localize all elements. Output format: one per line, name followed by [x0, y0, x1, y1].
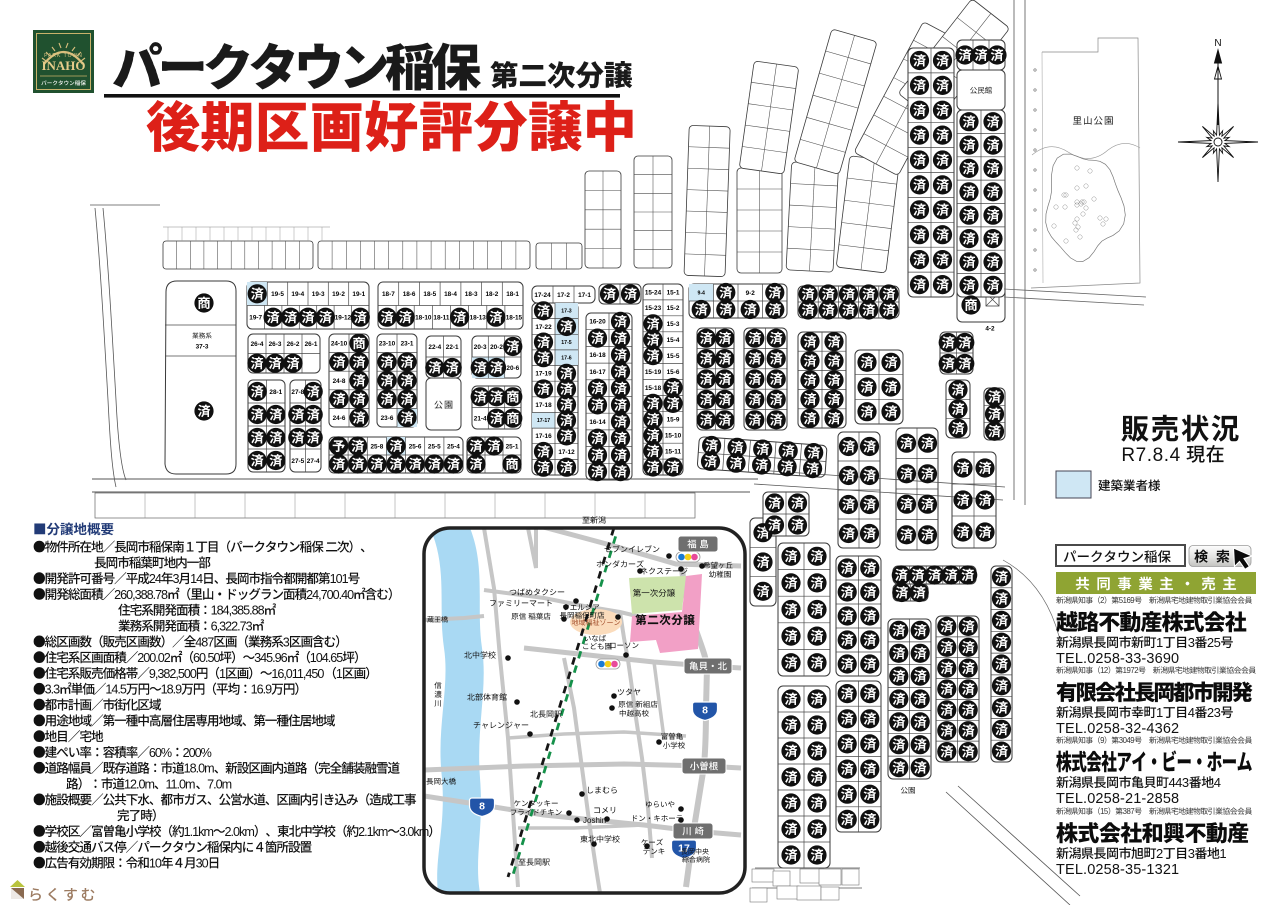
svg-text:18.0m: 18.0m: [184, 761, 214, 776]
svg-text:15-9: 15-9: [667, 417, 680, 424]
svg-text:30: 30: [196, 855, 209, 870]
svg-text:27-5: 27-5: [291, 458, 304, 465]
svg-text:2: 2: [1100, 596, 1104, 605]
svg-text:19-3: 19-3: [312, 291, 325, 298]
svg-text:3: 3: [283, 634, 290, 649]
svg-text:17-18: 17-18: [535, 402, 552, 409]
svg-text:17-12: 17-12: [558, 449, 575, 456]
svg-text:22-4: 22-4: [428, 344, 441, 351]
svg-text:11.0m: 11.0m: [165, 776, 194, 791]
svg-text:2.1km: 2.1km: [358, 824, 388, 839]
svg-text:TEL.0258-33-3690: TEL.0258-33-3690: [1056, 651, 1179, 667]
svg-text:6,322.73: 6,322.73: [211, 618, 253, 633]
svg-text:19-4: 19-4: [291, 291, 304, 298]
svg-text:3.3: 3.3: [45, 682, 60, 697]
svg-text:9,382,500: 9,382,500: [149, 666, 197, 681]
svg-text:17-16: 17-16: [535, 433, 552, 440]
svg-text:19-1: 19-1: [352, 291, 365, 298]
svg-text:8: 8: [702, 705, 708, 717]
svg-text:18-3: 18-3: [465, 291, 478, 298]
svg-text:2.0km: 2.0km: [225, 824, 255, 839]
svg-text:26-3: 26-3: [269, 341, 282, 348]
svg-text:17-5: 17-5: [561, 340, 571, 346]
svg-text:18-4: 18-4: [444, 291, 457, 298]
svg-text:26-2: 26-2: [287, 341, 300, 348]
svg-text:18.9: 18.9: [161, 682, 182, 697]
svg-text:200.02: 200.02: [137, 650, 170, 665]
svg-text:17-1: 17-1: [578, 292, 591, 299]
svg-text:TEL.0258-21-2858: TEL.0258-21-2858: [1056, 791, 1179, 807]
svg-text:23-6: 23-6: [381, 415, 394, 422]
svg-text:12: 12: [1100, 666, 1108, 675]
svg-text:15-6: 15-6: [667, 369, 680, 376]
svg-text:20-2: 20-2: [490, 344, 503, 351]
svg-text:28-1: 28-1: [269, 389, 282, 396]
svg-text:7.0m: 7.0m: [207, 776, 231, 791]
svg-text:17-19: 17-19: [535, 371, 552, 378]
svg-text:23-1: 23-1: [401, 341, 414, 348]
svg-text:19-5: 19-5: [271, 291, 284, 298]
svg-text:18-10: 18-10: [415, 315, 432, 322]
svg-text:60.50: 60.50: [193, 650, 220, 665]
svg-text:21-4: 21-4: [474, 416, 487, 423]
svg-text:4: 4: [1214, 775, 1221, 790]
svg-text:487: 487: [195, 634, 214, 649]
svg-text:3: 3: [1188, 635, 1195, 650]
svg-text:37-3: 37-3: [196, 343, 209, 350]
svg-text:15-11: 15-11: [665, 448, 681, 455]
svg-text:9: 9: [1100, 736, 1104, 745]
svg-text:17-3: 17-3: [561, 309, 571, 315]
svg-text:3: 3: [172, 571, 179, 586]
svg-text:10: 10: [149, 855, 162, 870]
svg-text:17-17: 17-17: [537, 418, 550, 424]
svg-text:443: 443: [1168, 775, 1188, 790]
svg-text:16-14: 16-14: [589, 419, 606, 426]
svg-text:19-7: 19-7: [249, 315, 262, 322]
svg-text:N: N: [1214, 38, 1221, 49]
svg-text:3049: 3049: [1119, 736, 1135, 745]
svg-text:1.1km: 1.1km: [184, 824, 214, 839]
svg-text:R7.8.4: R7.8.4: [1121, 445, 1180, 466]
svg-text:1972: 1972: [1123, 666, 1139, 675]
svg-text:18-5: 18-5: [423, 291, 436, 298]
svg-text:1: 1: [1219, 846, 1226, 861]
svg-text:1: 1: [336, 666, 343, 681]
svg-text:200%: 200%: [183, 745, 212, 760]
svg-text:17-24: 17-24: [534, 292, 551, 299]
svg-text:15: 15: [1100, 807, 1109, 816]
svg-text:15-1: 15-1: [667, 289, 680, 296]
svg-text:16.9: 16.9: [251, 682, 272, 697]
svg-text:25-1: 25-1: [506, 443, 519, 450]
svg-text:Joshin: Joshin: [583, 816, 606, 825]
svg-text:15-2: 15-2: [667, 305, 680, 312]
svg-text:23-10: 23-10: [379, 341, 396, 348]
svg-text:8: 8: [479, 801, 485, 813]
svg-text:16-20: 16-20: [589, 319, 606, 326]
svg-text:15-18: 15-18: [645, 385, 662, 392]
svg-text:25-4: 25-4: [447, 443, 460, 450]
svg-text:1: 1: [1156, 705, 1163, 720]
svg-text:387: 387: [1123, 807, 1135, 816]
svg-text:15-4: 15-4: [667, 337, 680, 344]
svg-text:27-4: 27-4: [307, 458, 320, 465]
svg-text:23: 23: [1207, 705, 1221, 720]
svg-text:2: 2: [1156, 846, 1163, 861]
svg-text:17-22: 17-22: [535, 324, 552, 331]
svg-text:15-3: 15-3: [667, 321, 680, 328]
svg-text:1: 1: [1156, 635, 1163, 650]
svg-text:101: 101: [330, 571, 349, 586]
svg-text:18-6: 18-6: [403, 291, 416, 298]
svg-text:25: 25: [1207, 635, 1221, 650]
svg-text:27-8: 27-8: [291, 389, 304, 396]
svg-text:22-1: 22-1: [446, 344, 459, 351]
svg-text:19-2: 19-2: [332, 291, 345, 298]
svg-text:INAHO: INAHO: [41, 58, 85, 73]
svg-text:17-6: 17-6: [561, 356, 571, 362]
svg-text:26-4: 26-4: [251, 341, 264, 348]
svg-text:18-11: 18-11: [433, 315, 449, 322]
svg-text:4: 4: [1188, 705, 1195, 720]
svg-text:9-2: 9-2: [746, 290, 756, 297]
svg-text:5169: 5169: [1119, 596, 1135, 605]
svg-text:17-2: 17-2: [557, 292, 570, 299]
svg-text:25-6: 25-6: [409, 443, 422, 450]
svg-text:15-19: 15-19: [645, 369, 662, 376]
svg-text:104.65: 104.65: [310, 650, 343, 665]
svg-text:16-18: 16-18: [589, 352, 606, 359]
svg-text:1: 1: [219, 666, 226, 681]
svg-text:TEL.0258-35-1321: TEL.0258-35-1321: [1056, 862, 1179, 878]
svg-text:16-17: 16-17: [589, 369, 606, 376]
svg-text:26-1: 26-1: [305, 341, 318, 348]
svg-text:TEL.0258-32-4362: TEL.0258-32-4362: [1056, 721, 1179, 737]
svg-text:4-2: 4-2: [985, 325, 995, 332]
svg-text:345.96: 345.96: [254, 650, 287, 665]
svg-text:3.0km: 3.0km: [399, 824, 429, 839]
svg-text:12.0m: 12.0m: [124, 776, 154, 791]
svg-text:14.5: 14.5: [105, 682, 126, 697]
svg-text:184,385.88: 184,385.88: [211, 603, 265, 618]
svg-text:19-12: 19-12: [335, 315, 352, 322]
svg-text:15-5: 15-5: [667, 353, 680, 360]
svg-text:24,700.40: 24,700.40: [306, 587, 354, 602]
svg-text:24-10: 24-10: [331, 341, 348, 348]
svg-text:20-3: 20-3: [474, 344, 487, 351]
svg-text:3: 3: [1188, 846, 1195, 861]
svg-text:15-23: 15-23: [645, 305, 662, 312]
svg-text:18-1: 18-1: [506, 291, 519, 298]
svg-text:18-2: 18-2: [486, 291, 499, 298]
svg-text:24-6: 24-6: [333, 415, 346, 422]
svg-text:16,011,450: 16,011,450: [271, 666, 324, 681]
svg-text:260,388.78: 260,388.78: [114, 587, 168, 602]
svg-text:24-8: 24-8: [333, 378, 346, 385]
svg-text:9-4: 9-4: [697, 290, 705, 296]
svg-text:25-8: 25-8: [371, 443, 384, 450]
svg-text:15-10: 15-10: [665, 433, 682, 440]
svg-text:14: 14: [190, 571, 203, 586]
svg-text:18-15: 18-15: [506, 315, 523, 322]
svg-text:20-6: 20-6: [506, 365, 519, 372]
svg-text:60%: 60%: [149, 745, 172, 760]
svg-text:25-5: 25-5: [428, 443, 441, 450]
svg-text:18-13: 18-13: [470, 315, 487, 322]
svg-text:18-7: 18-7: [382, 291, 395, 298]
svg-text:15-24: 15-24: [645, 289, 662, 296]
svg-text:24: 24: [149, 571, 162, 586]
